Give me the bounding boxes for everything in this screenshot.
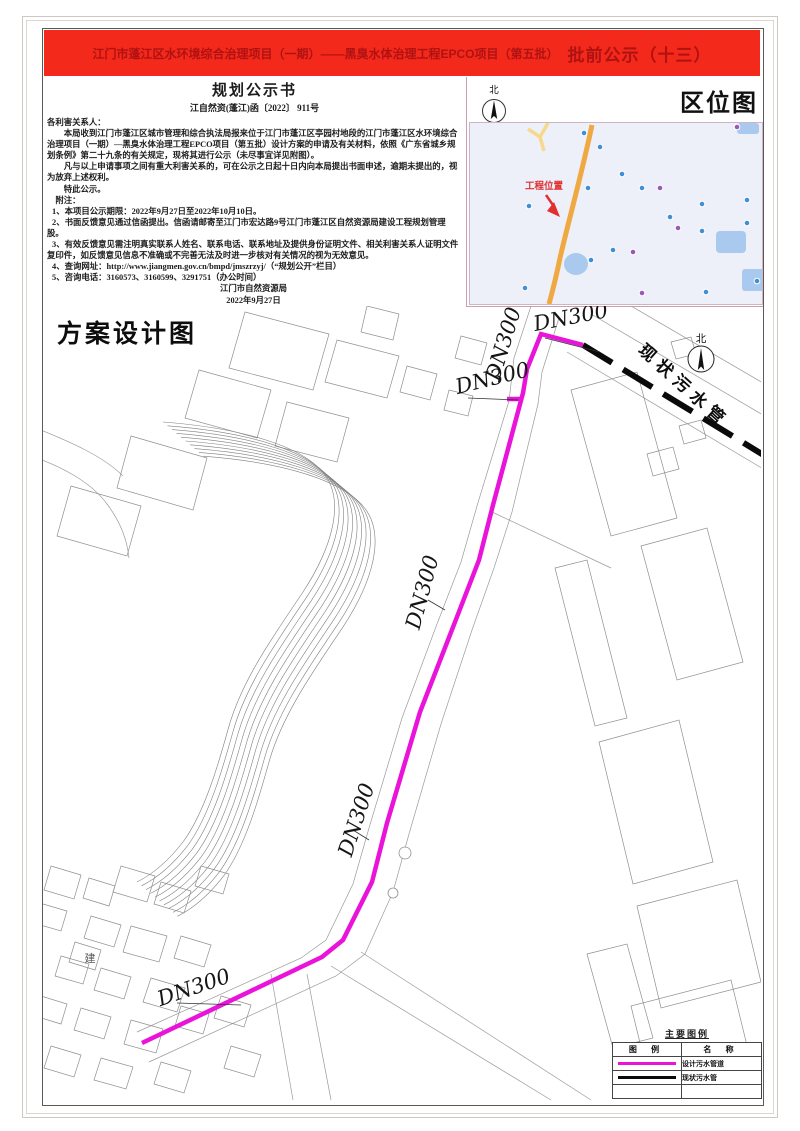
manhole-circle: [388, 888, 398, 898]
notice-date: 2022年9月27日: [47, 295, 460, 306]
legend-header-row: 图 例 名 称: [613, 1043, 762, 1057]
legend-name-existing-pipe: 现状污水管: [682, 1071, 762, 1085]
notice-note-3: 3、有效反馈意见需注明真实联系人姓名、联系电话、联系地址及提供身份证明文件、相关…: [47, 239, 460, 261]
legend: 主要图例 图 例 名 称 设计污水管道 现状污水管: [612, 1027, 762, 1099]
label-leader-lines: [177, 338, 600, 1005]
dn300-label: DN300: [530, 306, 609, 336]
manhole-circle: [399, 847, 411, 859]
para1-pre: 本局收到江门市蓬江区城市管理和综合执法局报来位于江门市蓬江区亭园村地段的: [64, 129, 366, 138]
design-pipe-sample-line: [618, 1062, 676, 1065]
legend-col-symbol: 图 例: [613, 1043, 682, 1057]
legend-empty-row: [613, 1085, 762, 1099]
notice-note-2: 2、书面反馈意见通过信函提出。信函请邮寄至江门市宏达路9号江门市蓬江区自然资源局…: [47, 217, 460, 239]
building-char-label: 建: [85, 951, 96, 965]
project-location-label: 工程位置: [525, 180, 564, 192]
dn300-label: DN300: [333, 780, 379, 860]
design-sewer-pipeline: [142, 334, 583, 1043]
scanned-notice-page: 江门市蓬江区水环境综合治理项目（一期）——黑臭水体治理工程EPCO项目（第五批）…: [0, 0, 800, 1131]
notice-issuer: 江门市自然资源局: [47, 283, 460, 294]
notice-paragraph-2: 凡与以上申请事项之间有重大利害关系的，可在公示之日起十日内向本局提出书面申述，逾…: [47, 161, 460, 183]
notice-heading: 规划公示书: [45, 79, 464, 100]
pipe-diameter-labels: DN300 DN300 DN300 DN300 DN300 DN300: [153, 306, 610, 1011]
notice-doc-number: 江自然资(蓬江)函〔2022〕 911号: [45, 101, 464, 114]
notice-body: 各利害关系人： 本局收到江门市蓬江区城市管理和综合执法局报来位于江门市蓬江区亭园…: [45, 117, 464, 305]
existing-pipe-sample-line: [618, 1076, 676, 1079]
legend-row-existing-pipe: 现状污水管: [613, 1071, 762, 1085]
north-label: 北: [489, 85, 499, 96]
notice-paragraph-3: 特此公示。: [47, 184, 460, 195]
notice-note-4-url: 4、查询网址：http://www.jiangmen.gov.cn/bmpd/j…: [47, 261, 460, 272]
location-map-canvas: 工程位置: [469, 122, 763, 305]
secondary-road: [528, 123, 548, 151]
notice-note-5-phone: 5、咨询电话：3160573、3160599、3291751（办公时间）: [47, 272, 460, 283]
dn300-label: DN300: [401, 553, 444, 633]
compass-needle: [491, 101, 497, 120]
plan-title: 方案设计图: [57, 314, 197, 350]
map-pins-purple: [630, 124, 740, 296]
notice-note-1: 1、本项目公示期限：2022年9月27日至2022年10月10日。: [47, 206, 460, 217]
street-lines: [43, 306, 761, 1100]
notice-paragraph-1: 本局收到江门市蓬江区城市管理和综合执法局报来位于江门市蓬江区亭园村地段的江门市蓬…: [47, 128, 460, 161]
notice-notes-label: 附注：: [47, 195, 460, 206]
location-map-title: 区位图: [680, 83, 758, 118]
project-location-arrow-head: [547, 202, 560, 217]
water-bodies: [564, 123, 762, 291]
legend-table: 图 例 名 称 设计污水管道 现状污水管: [612, 1042, 762, 1099]
banner-title-suffix: 批前公示（十三）: [568, 41, 712, 66]
banner-title: 江门市蓬江区水环境综合治理项目（一期）——黑臭水体治理工程EPCO项目（第五批）: [92, 45, 558, 62]
banner: 江门市蓬江区水环境综合治理项目（一期）——黑臭水体治理工程EPCO项目（第五批）…: [44, 30, 760, 76]
legend-row-design-pipe: 设计污水管道: [613, 1057, 762, 1071]
legend-col-name: 名 称: [682, 1043, 762, 1057]
buildings-east: [555, 337, 761, 1088]
north-label: 北: [696, 333, 707, 345]
notice-panel: 规划公示书 江自然资(蓬江)函〔2022〕 911号 各利害关系人： 本局收到江…: [45, 78, 464, 305]
legend-title: 主要图例: [612, 1027, 762, 1040]
plan-drawing: DN300 DN300 DN300 DN300 DN300 DN300 现状污水…: [43, 306, 761, 1103]
notice-salutation: 各利害关系人：: [47, 117, 460, 128]
legend-name-design-pipe: 设计污水管道: [682, 1057, 762, 1071]
location-map-svg: 工程位置: [470, 123, 762, 304]
north-compass-icon: 北: [479, 83, 509, 127]
location-map-panel: 区位图 北: [466, 77, 763, 307]
